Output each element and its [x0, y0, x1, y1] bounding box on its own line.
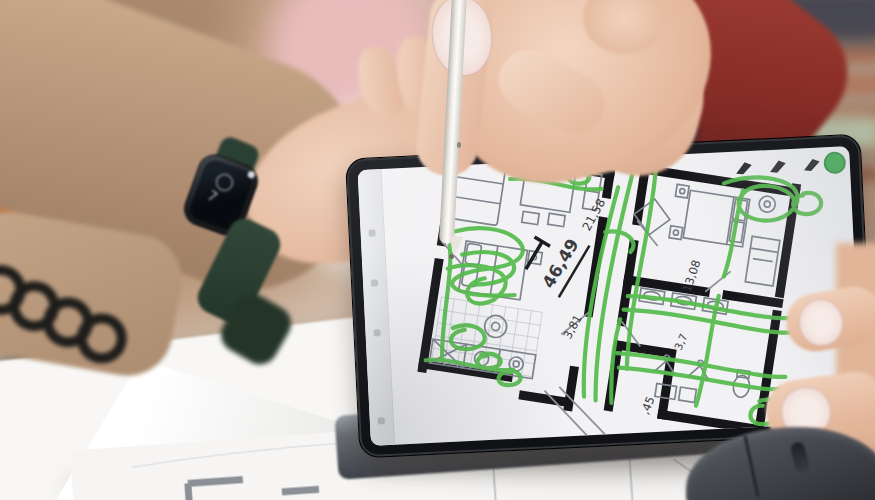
- marker-tool-icon: [731, 159, 756, 176]
- watch-face-digit: 7: [205, 187, 221, 205]
- dim-label: 3,7: [672, 332, 690, 352]
- sidebar-tool-icon: [373, 329, 380, 336]
- stylus-point: [449, 254, 454, 259]
- sidebar-tool-icon: [378, 417, 385, 424]
- dim-label: ,45: [638, 394, 658, 416]
- marker-tool-icon: [799, 155, 824, 172]
- photo-scene: 7: [0, 0, 875, 500]
- sidebar-tool-icon: [371, 279, 378, 286]
- dim-label: 3,81: [560, 312, 585, 341]
- stylus-speck: [457, 142, 461, 148]
- marker-tool-icon: [765, 157, 790, 174]
- sidebar-tool-icon: [368, 229, 375, 236]
